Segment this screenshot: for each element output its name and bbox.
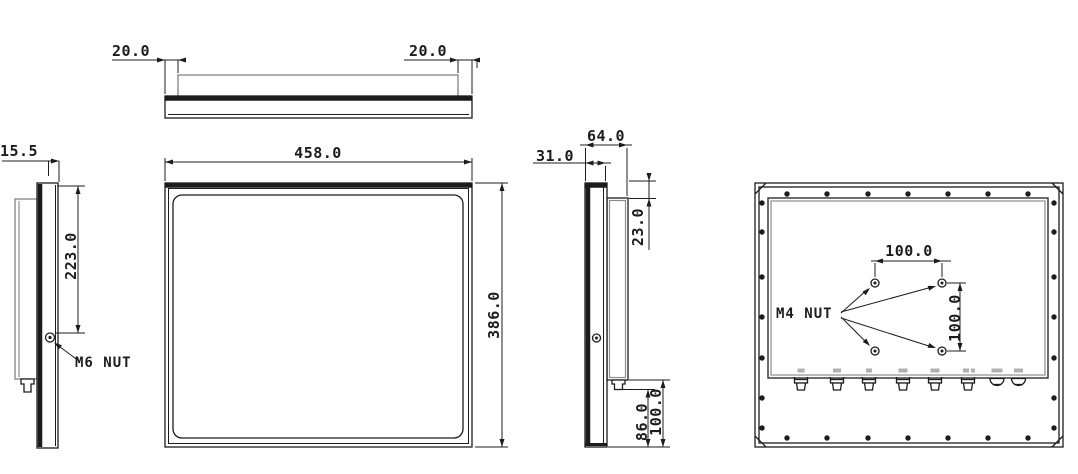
drawing-linework bbox=[0, 0, 1078, 474]
side-connector-stub bbox=[612, 380, 625, 390]
dim-label-width: 458.0 bbox=[288, 144, 348, 162]
top-dim-left bbox=[112, 58, 186, 95]
dim-label-top-right: 20.0 bbox=[398, 42, 458, 60]
top-view bbox=[112, 58, 480, 119]
m4-nut-callout: M4 NUT bbox=[776, 306, 833, 322]
dim-label-front-depth: 31.0 bbox=[525, 147, 585, 165]
dimension-drawing: 20.0 20.0 15.5 223.0 M6 NUT 458.0 386.0 … bbox=[0, 0, 1078, 474]
dim-thickness bbox=[2, 159, 59, 183]
dim-label-vesa-width: 100.0 bbox=[879, 242, 939, 260]
m6-nut-callout: M6 NUT bbox=[75, 355, 132, 371]
dim-label-height: 386.0 bbox=[485, 280, 503, 350]
dim-label-thickness: 15.5 bbox=[0, 142, 49, 160]
dim-label-top-left: 20.0 bbox=[101, 42, 161, 60]
dim-label-top-inset: 23.0 bbox=[629, 192, 647, 262]
dim-label-vesa-height: 100.0 bbox=[946, 283, 964, 353]
side-connector-stub bbox=[21, 379, 34, 392]
dim-label-bottom-total: 100.0 bbox=[647, 377, 665, 447]
dim-label-total-depth: 64.0 bbox=[576, 127, 636, 145]
dim-label-nut-offset: 223.0 bbox=[62, 221, 80, 291]
left-side-view bbox=[2, 159, 85, 449]
front-view bbox=[165, 158, 508, 447]
